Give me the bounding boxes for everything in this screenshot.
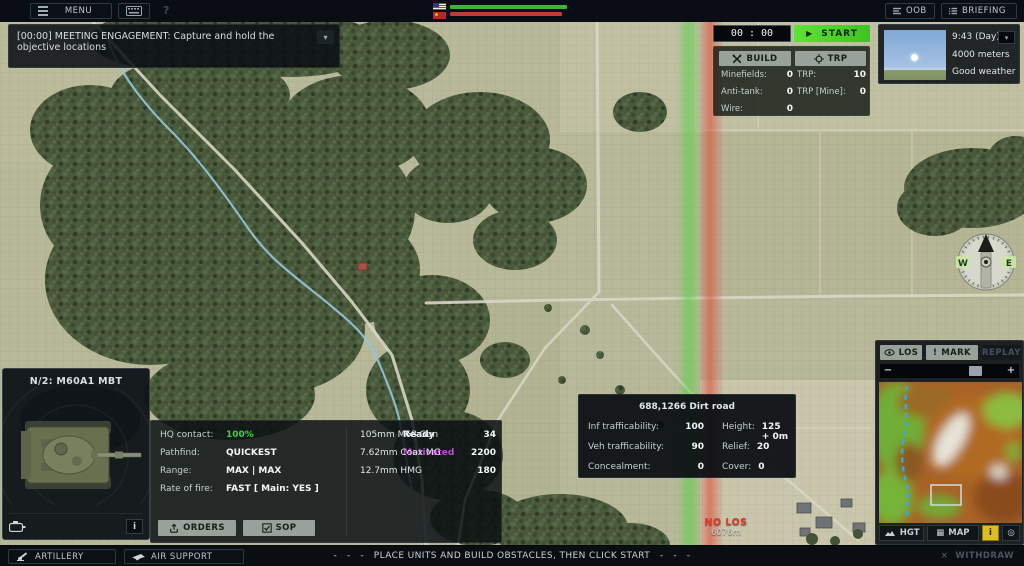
jet-icon xyxy=(132,553,146,561)
terrain-relief: Relief: 20 xyxy=(722,442,790,452)
building-red xyxy=(358,263,367,270)
map-toggle-button[interactable]: ▦ MAP xyxy=(927,525,978,541)
los-readout: NO LOS 6076m xyxy=(694,517,758,538)
trp-button[interactable]: TRP xyxy=(795,51,866,66)
help-button[interactable]: ? xyxy=(163,4,169,17)
trp-label: TRP xyxy=(828,54,848,64)
mark-label: MARK xyxy=(941,348,971,358)
game-screen: MENU ? OOB xyxy=(0,0,1024,566)
visibility-value: 4000 meters xyxy=(952,50,1010,60)
unit-info-button[interactable]: i xyxy=(126,519,143,534)
sop-label: SOP xyxy=(276,523,297,533)
build-tools-icon xyxy=(732,54,742,64)
orders-icon xyxy=(169,523,179,533)
unit-title: N/2: M60A1 MBT xyxy=(3,376,149,387)
timer-value: 00 : 00 xyxy=(731,28,773,39)
unit-panel: N/2: M60A1 MBT xyxy=(2,368,150,540)
stat-range: Range: MAX | MAX xyxy=(160,466,338,480)
artillery-label: ARTILLERY xyxy=(35,552,84,562)
divider xyxy=(346,427,347,536)
objective-banner: [00:00] MEETING ENGAGEMENT: Capture and … xyxy=(8,24,340,68)
plus-icon: + xyxy=(1007,365,1015,376)
faction-flags xyxy=(433,3,446,19)
chevron-down-icon: ▾ xyxy=(1005,34,1009,42)
los-status: NO LOS xyxy=(694,517,758,528)
friendly-strength-bar xyxy=(450,5,567,9)
withdraw-label: WITHDRAW xyxy=(955,551,1014,561)
artillery-button[interactable]: ARTILLERY xyxy=(8,549,116,564)
terrain-cover: Cover: 0 xyxy=(722,462,790,472)
eye-icon xyxy=(884,349,895,356)
minimap-heightmap xyxy=(879,382,1022,523)
minus-icon: − xyxy=(884,365,892,376)
list-icon xyxy=(893,7,901,15)
oob-button[interactable]: OOB xyxy=(885,3,935,19)
build-label: BUILD xyxy=(746,54,777,64)
stat-rate-of-fire: Rate of fire: FAST [ Main: YES ] xyxy=(160,484,355,498)
terrain-inf-traffic: Inf trafficability: 100 xyxy=(588,422,704,432)
weapon-row: 12.7mm HMG 180 xyxy=(360,466,496,476)
help-label: ? xyxy=(163,4,169,17)
zoom-out-button[interactable]: − xyxy=(880,364,896,378)
stat-antitank: Anti-tank: 0 xyxy=(721,87,793,97)
zoom-track[interactable] xyxy=(896,364,1003,378)
replay-label: REPLAY xyxy=(982,348,1021,358)
briefing-button[interactable]: BRIEFING xyxy=(941,3,1017,19)
start-label: START xyxy=(821,29,858,39)
terrain-title: 688,1266 Dirt road xyxy=(579,402,795,412)
menu-button[interactable]: MENU xyxy=(30,3,112,19)
weather-collapse-button[interactable]: ▾ xyxy=(998,31,1015,44)
keyboard-icon xyxy=(126,6,142,16)
objective-collapse-button[interactable]: ▾ xyxy=(317,30,334,44)
replay-button: REPLAY xyxy=(982,345,1021,360)
info-label: i xyxy=(133,522,136,532)
stat-wire: Wire: 0 xyxy=(721,104,793,114)
build-button[interactable]: BUILD xyxy=(719,51,791,66)
stat-minefields: Minefields: 0 xyxy=(721,70,793,80)
unit-stats-panel: HQ contact: 100% Pathfind: QUICKEST Rang… xyxy=(150,420,502,543)
enemy-strength-bar xyxy=(450,12,562,16)
minimap-terrain[interactable] xyxy=(879,382,1022,523)
compass-west-label: W xyxy=(958,259,968,269)
time-of-day: 9:43 (Day) xyxy=(952,32,1000,42)
los-distance: 6076m xyxy=(694,528,758,538)
air-support-label: AIR SUPPORT xyxy=(151,552,212,562)
weapon-row: 7.62mm Coax MG 2200 xyxy=(360,448,496,458)
top-bar: MENU ? OOB xyxy=(0,0,1024,22)
minimap-info-button[interactable]: i xyxy=(982,525,1000,541)
bottom-bar: - - - PLACE UNITS AND BUILD OBSTACLES, T… xyxy=(0,545,1024,566)
sun-icon xyxy=(911,54,918,61)
unit-view-icon[interactable] xyxy=(9,521,26,532)
minimap-panel: LOS ! MARK REPLAY − + xyxy=(875,340,1024,545)
stat-pathfind: Pathfind: QUICKEST xyxy=(160,448,338,462)
build-panel: BUILD TRP Minefields: 0 Anti-tank: 0 Wir… xyxy=(713,46,870,116)
opfor-flag-icon xyxy=(433,12,446,19)
terrain-concealment: Concealment: 0 xyxy=(588,462,704,472)
bullet-list-icon xyxy=(949,7,957,15)
compass-east-label: E xyxy=(1006,259,1012,269)
briefing-label: BRIEFING xyxy=(962,6,1006,16)
start-button[interactable]: ▶ START xyxy=(794,25,870,42)
map-label: MAP xyxy=(948,528,969,538)
mountain-icon xyxy=(884,529,896,537)
hotkeys-button[interactable] xyxy=(118,3,150,19)
stat-trp: TRP: 10 xyxy=(797,70,866,80)
los-label: LOS xyxy=(899,348,919,358)
close-icon: × xyxy=(941,551,949,561)
hgt-toggle-button[interactable]: HGT xyxy=(879,525,924,541)
mission-timer: 00 : 00 xyxy=(713,25,791,42)
weather-condition: Good weather xyxy=(952,67,1015,77)
los-button[interactable]: LOS xyxy=(880,345,922,360)
sop-button[interactable]: SOP xyxy=(243,520,315,536)
orders-button[interactable]: ORDERS xyxy=(158,520,236,536)
info-label: i xyxy=(989,528,992,538)
menu-label: MENU xyxy=(53,6,104,16)
hgt-label: HGT xyxy=(900,528,920,538)
stat-trp-mine: TRP [Mine]: 0 xyxy=(797,87,866,97)
sky-preview xyxy=(884,30,946,80)
withdraw-button[interactable]: × WITHDRAW xyxy=(941,551,1014,561)
recenter-icon: ◎ xyxy=(1007,528,1014,538)
compass: W E xyxy=(948,226,1024,298)
grid-icon: ▦ xyxy=(936,528,944,538)
terrain-height: Height: 125 + 0m xyxy=(722,422,790,442)
trp-target-icon xyxy=(814,54,824,64)
us-flag-icon xyxy=(433,3,446,10)
zoom-in-button[interactable]: + xyxy=(1003,364,1019,378)
artillery-icon xyxy=(16,552,30,561)
zoom-thumb[interactable] xyxy=(969,366,982,376)
air-support-button[interactable]: AIR SUPPORT xyxy=(124,549,244,564)
mark-button[interactable]: ! MARK xyxy=(926,345,978,360)
weather-panel: 9:43 (Day) ▾ 4000 meters Good weather xyxy=(878,24,1020,84)
terrain-veh-traffic: Veh trafficability: 90 xyxy=(588,442,704,452)
chevron-down-icon: ▾ xyxy=(323,33,327,42)
sop-checkbox-icon xyxy=(262,523,272,533)
objective-text: [00:00] MEETING ENGAGEMENT: Capture and … xyxy=(17,31,311,53)
mark-icon: ! xyxy=(933,348,937,358)
menu-icon xyxy=(38,6,48,16)
unit-portrait-tank xyxy=(13,415,145,495)
orders-label: ORDERS xyxy=(183,523,225,533)
play-icon: ▶ xyxy=(806,29,813,38)
stat-hq-contact: HQ contact: 100% xyxy=(160,430,338,444)
weapon-row: 105mm M68 Gun 34 xyxy=(360,430,496,440)
terrain-info-tooltip: 688,1266 Dirt road Inf trafficability: 1… xyxy=(578,394,796,478)
minimap-zoom-slider[interactable]: − + xyxy=(880,364,1019,378)
oob-label: OOB xyxy=(906,6,927,16)
recenter-button[interactable]: ◎ xyxy=(1002,525,1020,541)
